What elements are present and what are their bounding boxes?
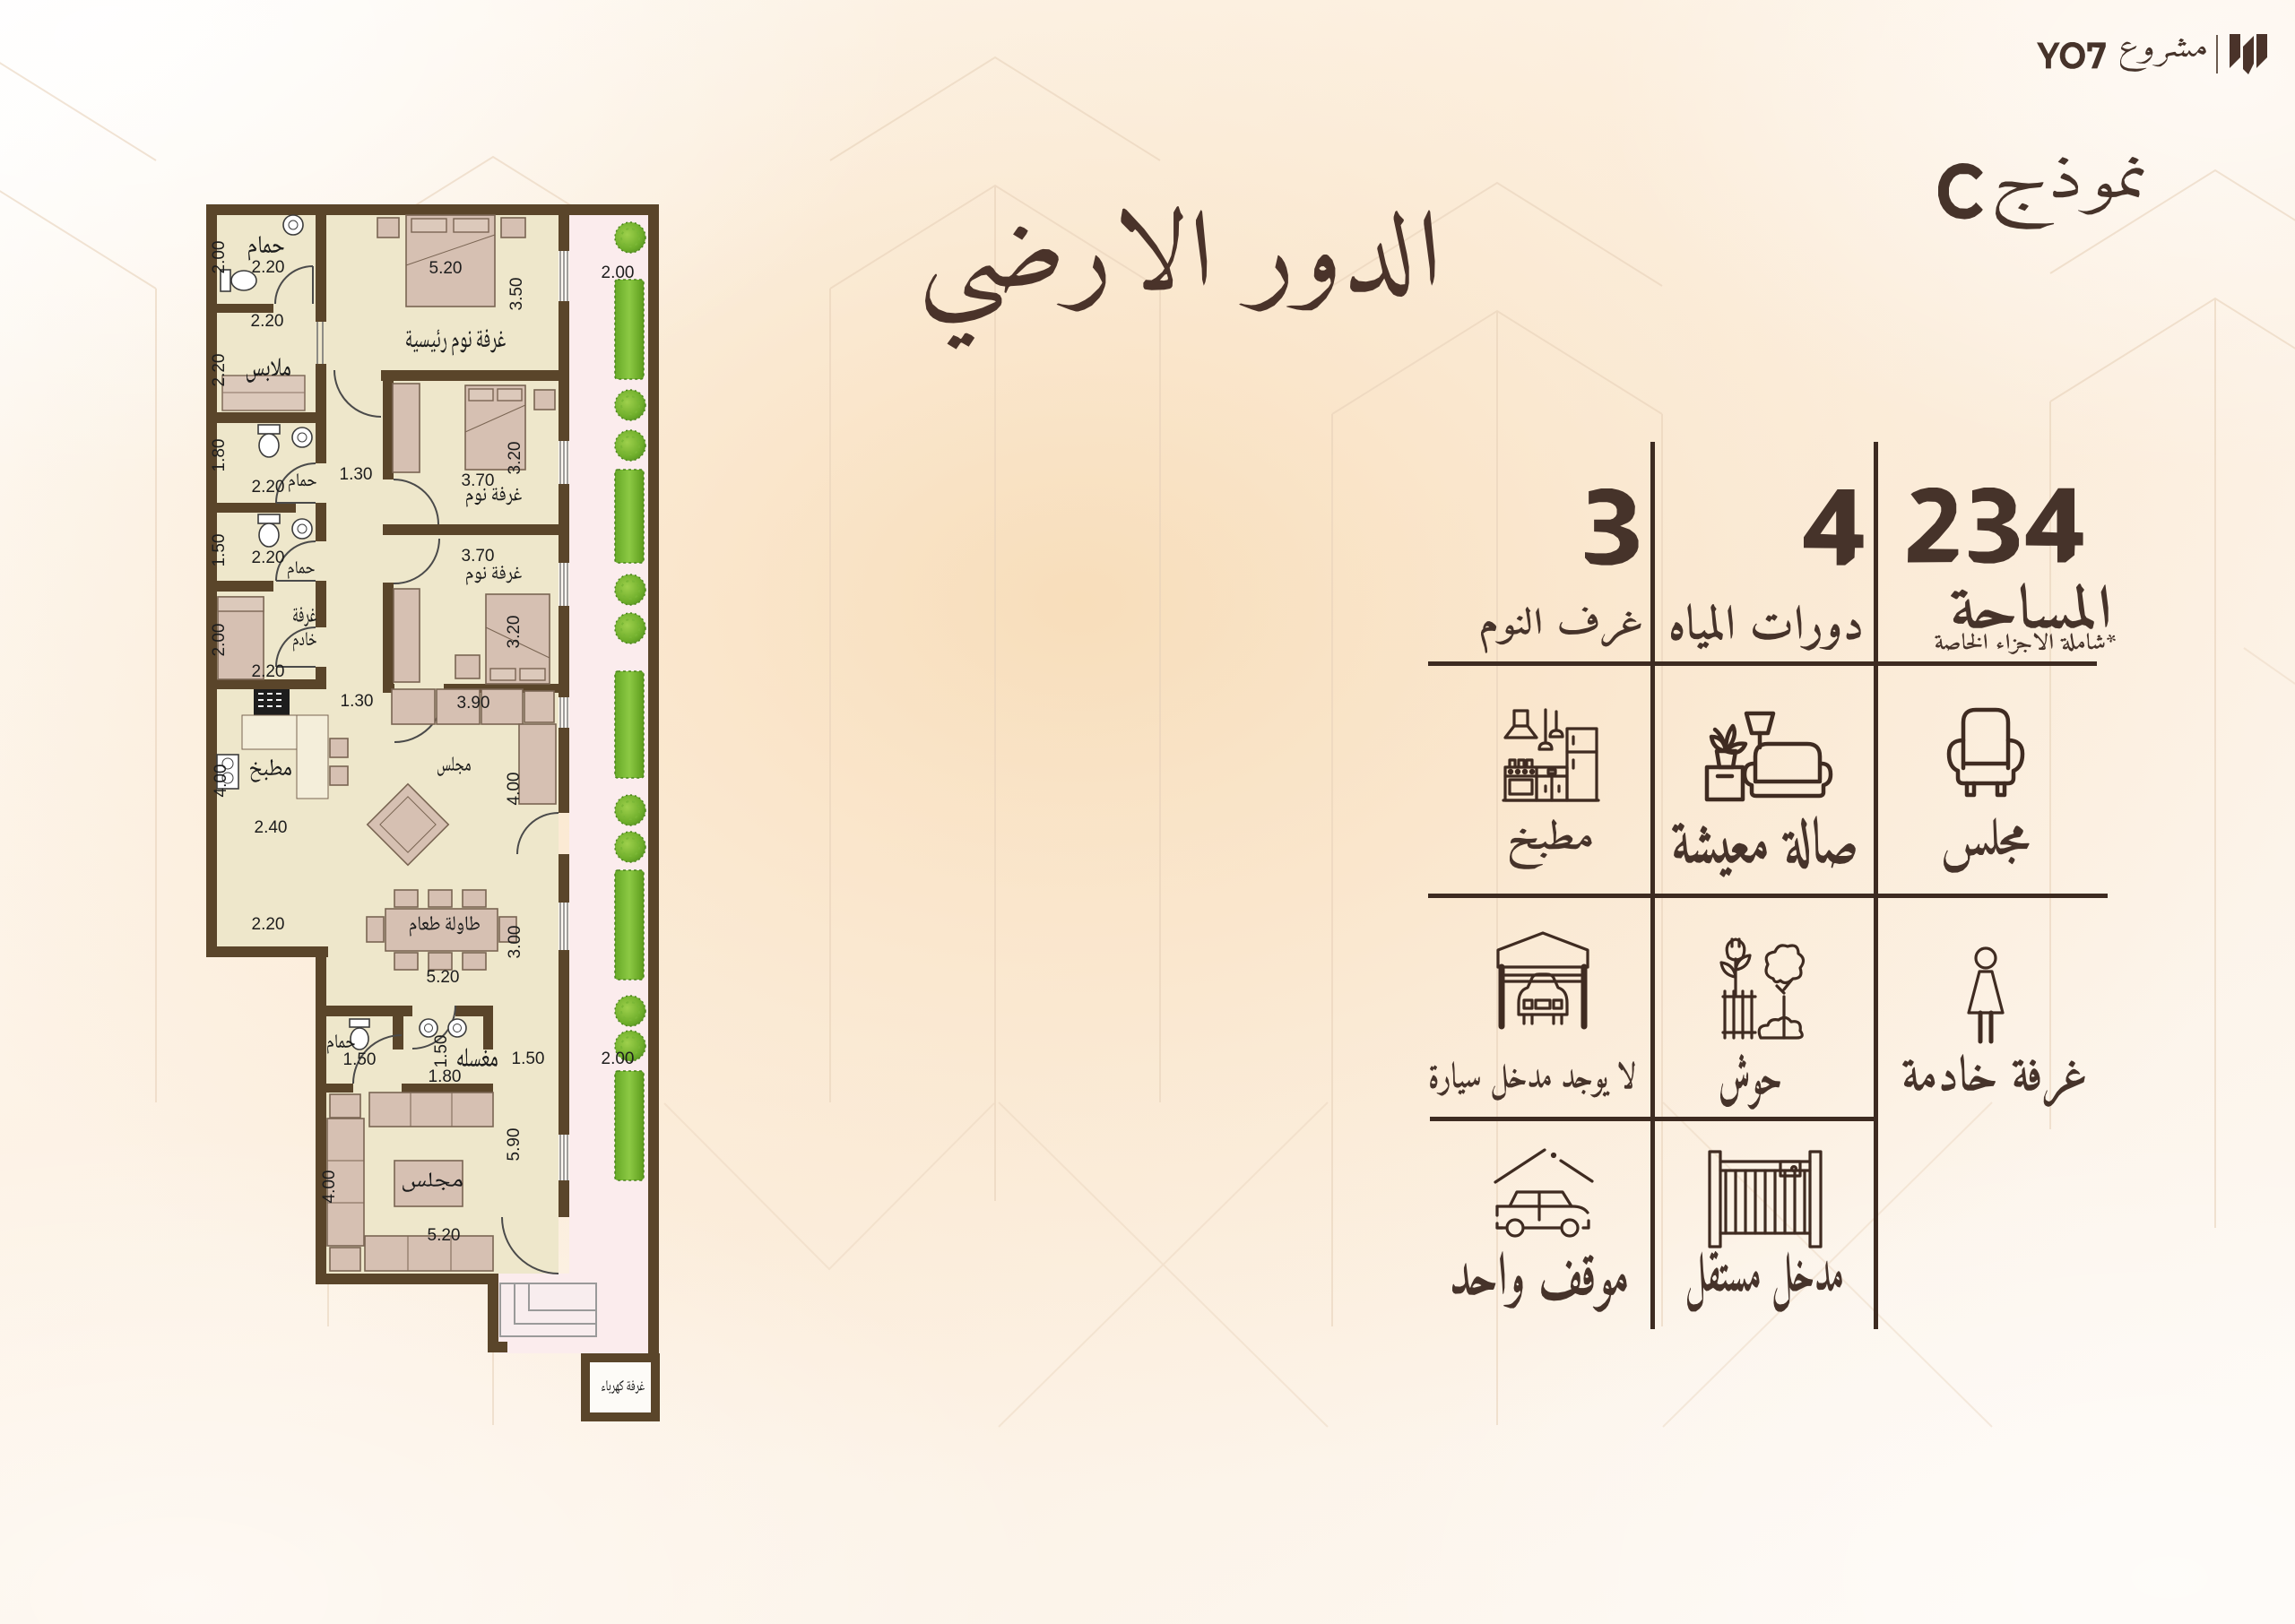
svg-text:1.50: 1.50	[210, 534, 229, 567]
svg-text:3.90: 3.90	[457, 694, 490, 713]
svg-text:2.20: 2.20	[251, 312, 284, 331]
svg-text:1.30: 1.30	[341, 692, 374, 711]
svg-text:1.50: 1.50	[512, 1050, 545, 1068]
svg-text:2.00: 2.00	[210, 241, 229, 274]
svg-text:3.20: 3.20	[506, 442, 524, 475]
svg-text:2.20: 2.20	[252, 915, 285, 934]
svg-text:2.20: 2.20	[252, 549, 285, 567]
svg-text:2.40: 2.40	[255, 818, 288, 837]
svg-text:3.70: 3.70	[462, 471, 495, 490]
svg-text:5.90: 5.90	[505, 1128, 524, 1162]
svg-text:2.20: 2.20	[252, 478, 285, 497]
svg-text:1.50: 1.50	[343, 1050, 377, 1069]
svg-text:5.20: 5.20	[428, 1226, 461, 1245]
svg-text:3.70: 3.70	[462, 547, 495, 566]
svg-text:2.20: 2.20	[210, 354, 229, 387]
svg-text:2.00: 2.00	[602, 1050, 635, 1068]
svg-text:2.20: 2.20	[252, 258, 285, 277]
svg-text:3.50: 3.50	[507, 278, 526, 311]
svg-text:4.00: 4.00	[505, 773, 524, 806]
svg-text:4.00: 4.00	[212, 764, 230, 798]
svg-text:2.20: 2.20	[252, 662, 285, 681]
svg-text:2.00: 2.00	[210, 624, 229, 657]
svg-text:4.00: 4.00	[320, 1170, 339, 1204]
svg-text:1.80: 1.80	[210, 439, 229, 472]
svg-text:5.20: 5.20	[427, 968, 460, 987]
svg-text:1.50: 1.50	[432, 1035, 451, 1068]
svg-text:1.80: 1.80	[429, 1067, 462, 1086]
svg-text:1.30: 1.30	[340, 465, 373, 484]
svg-text:2.00: 2.00	[602, 263, 635, 282]
svg-text:5.20: 5.20	[429, 259, 463, 278]
svg-text:3.00: 3.00	[506, 926, 524, 959]
svg-text:3.20: 3.20	[505, 616, 524, 649]
